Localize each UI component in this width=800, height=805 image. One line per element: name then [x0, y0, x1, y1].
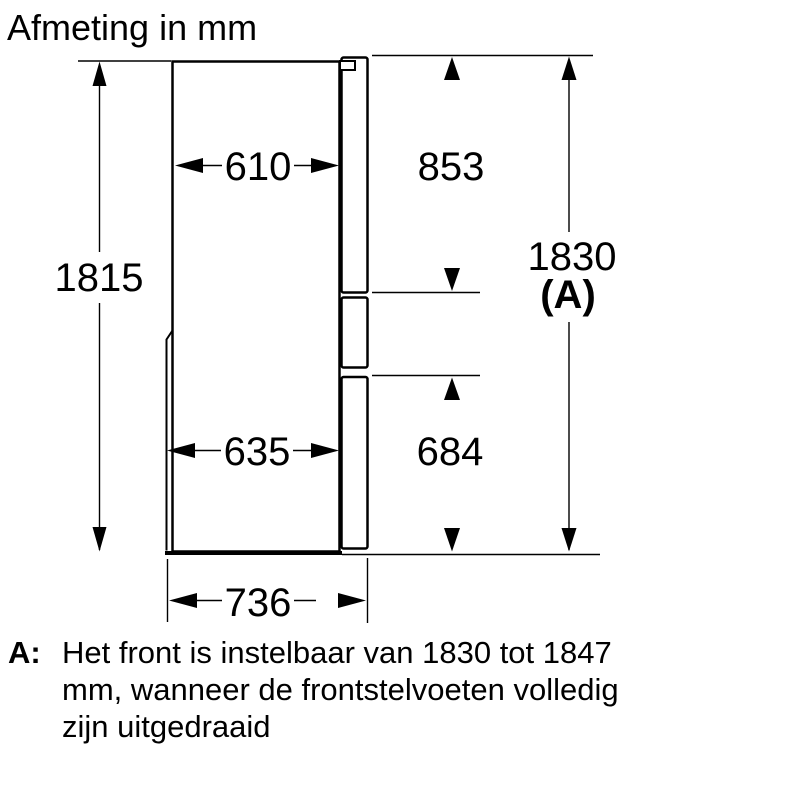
- middle-drawer-panel: [342, 298, 368, 368]
- arrow-up-icon: [444, 57, 460, 80]
- arrow-left-icon: [169, 593, 197, 608]
- dimension-body-height: 1815: [55, 61, 171, 552]
- arrow-right-icon: [338, 593, 366, 608]
- footnote-line-2: mm, wanneer de frontstelvoeten volledig: [62, 672, 619, 707]
- dim-ref-label-A: (A): [540, 273, 596, 317]
- lower-door-panel: [342, 377, 368, 549]
- arrow-right-icon: [311, 443, 339, 458]
- upper-door-panel: [342, 58, 368, 293]
- dim-value-853: 853: [418, 145, 485, 189]
- dimension-overall-height: 1830 (A): [342, 57, 616, 555]
- fridge-outline: [165, 58, 368, 554]
- arrow-down-icon: [444, 268, 460, 291]
- arrow-up-icon: [562, 57, 577, 81]
- dim-value-610: 610: [225, 145, 292, 189]
- dim-value-736: 736: [225, 581, 292, 625]
- arrow-up-icon: [93, 62, 107, 87]
- arrow-right-icon: [311, 158, 339, 173]
- dimension-overall-depth: 736: [168, 558, 368, 625]
- arrow-down-icon: [562, 528, 577, 552]
- top-hinge-notch: [340, 61, 355, 70]
- arrow-left-icon: [167, 443, 195, 458]
- arrow-left-icon: [175, 158, 203, 173]
- dim-value-635: 635: [224, 430, 291, 474]
- footnote-line-3: zijn uitgedraaid: [62, 709, 271, 744]
- arrow-up-icon: [444, 378, 460, 401]
- fridge-body: [173, 62, 340, 552]
- dim-value-1815: 1815: [55, 256, 144, 300]
- dimension-depth-bottom: 635: [167, 430, 339, 474]
- diagram-svg: Afmeting in mm 1815 610: [0, 0, 800, 800]
- footnote-line-1: Het front is instelbaar van 1830 tot 184…: [62, 635, 612, 670]
- footnote: A: Het front is instelbaar van 1830 tot …: [8, 635, 619, 744]
- footnote-prefix: A:: [8, 635, 41, 670]
- arrow-down-icon: [444, 528, 460, 552]
- dimension-diagram: Afmeting in mm 1815 610: [0, 0, 800, 800]
- dimension-depth-top: 610: [175, 145, 339, 189]
- diagram-title: Afmeting in mm: [7, 7, 257, 48]
- dim-value-684: 684: [417, 430, 484, 474]
- dimension-lower-door-height: 684: [372, 376, 483, 552]
- arrow-down-icon: [93, 527, 107, 552]
